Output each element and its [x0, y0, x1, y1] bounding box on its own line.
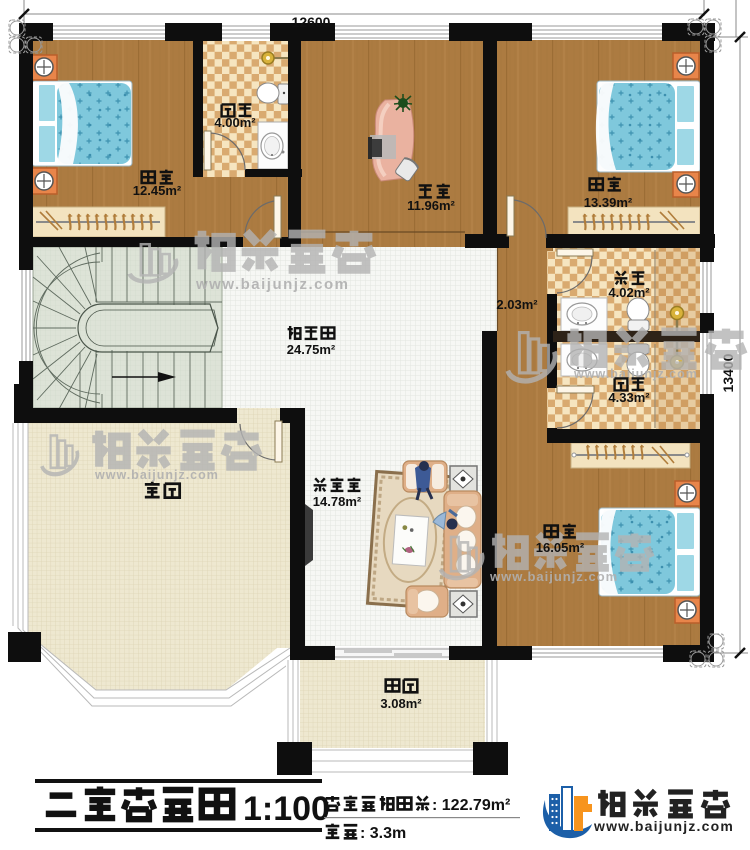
svg-text:www.baijunjz.com: www.baijunjz.com: [489, 569, 618, 584]
svg-text:12.45m²: 12.45m²: [133, 183, 182, 198]
svg-text:www.baijunjz.com: www.baijunjz.com: [94, 468, 219, 482]
svg-text:24.75m²: 24.75m²: [287, 342, 336, 357]
svg-text:11.96m²: 11.96m²: [407, 198, 455, 213]
svg-text:3.08m²: 3.08m²: [380, 696, 422, 711]
svg-text:14.78m²: 14.78m²: [313, 494, 362, 509]
svg-text:: 3.3m: : 3.3m: [360, 825, 406, 842]
svg-text:12600: 12600: [292, 14, 331, 30]
svg-text:13.39m²: 13.39m²: [584, 195, 633, 210]
svg-text:4.02m²: 4.02m²: [608, 285, 650, 300]
svg-text:4.33m²: 4.33m²: [608, 390, 650, 405]
svg-text:: 122.79m²: : 122.79m²: [432, 797, 510, 814]
svg-text:16.05m²: 16.05m²: [536, 540, 585, 555]
svg-text:2.03m²: 2.03m²: [496, 297, 538, 312]
svg-text:www.baijunjz.com: www.baijunjz.com: [593, 818, 734, 834]
svg-text:1:100: 1:100: [243, 790, 330, 828]
svg-text:www.baijunjz.com: www.baijunjz.com: [195, 276, 349, 293]
svg-text:4.00m²: 4.00m²: [214, 115, 256, 130]
